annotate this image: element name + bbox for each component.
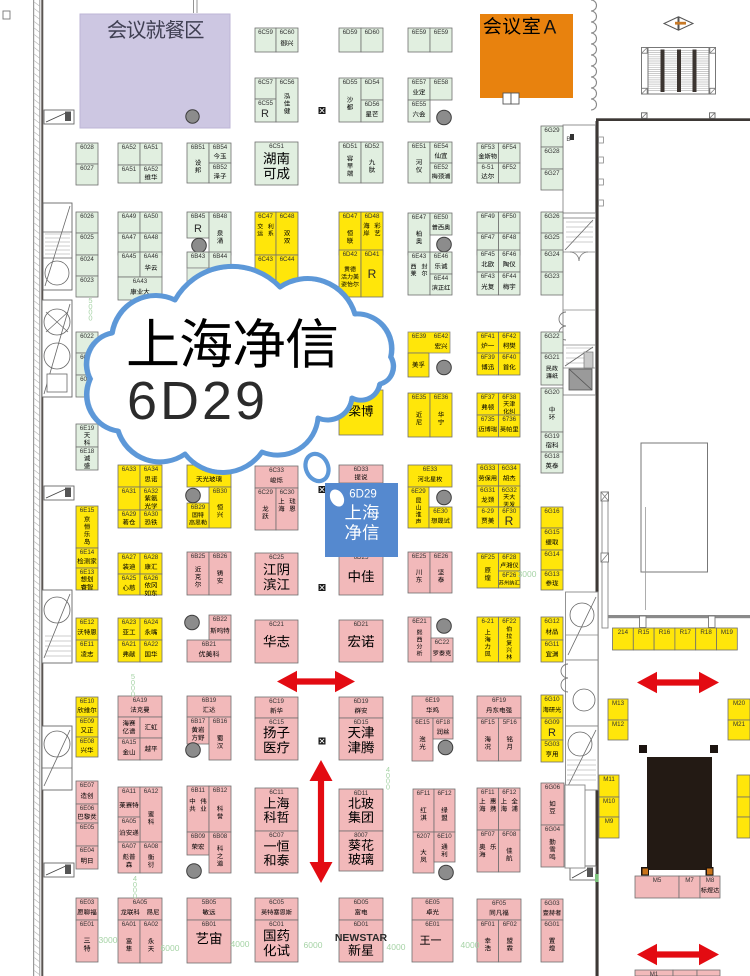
svg-text:6G27: 6G27 [544,170,560,177]
svg-text:6F54: 6F54 [502,144,517,151]
svg-text:6F22: 6F22 [502,618,517,625]
svg-text:5G03: 5G03 [544,741,560,748]
svg-text:0: 0 [131,689,135,698]
svg-text:6D33: 6D33 [354,466,369,473]
svg-text:5F16: 5F16 [503,719,518,726]
svg-text:6E59: 6E59 [412,29,427,36]
svg-text:6D11: 6D11 [354,790,369,797]
svg-text:6B45: 6B45 [191,213,206,220]
svg-text:6G04: 6G04 [545,826,561,833]
svg-text:6C44: 6C44 [280,256,295,263]
svg-text:6B21: 6B21 [202,641,217,648]
svg-text:6C01: 6C01 [269,921,284,928]
svg-text:6G18: 6G18 [544,453,560,460]
svg-text:6F01: 6F01 [481,921,496,928]
svg-text:6C07: 6C07 [269,832,284,839]
svg-text:R: R [261,108,269,120]
svg-text:6E15: 6E15 [80,507,95,514]
svg-text:6-29: 6-29 [482,508,495,515]
svg-text:6E26: 6E26 [434,553,449,560]
svg-text:6A43: 6A43 [133,278,148,285]
svg-text:6E44: 6E44 [434,275,449,282]
svg-text:6G16: 6G16 [544,508,560,515]
svg-text:6025: 6025 [80,234,94,241]
svg-text:3000: 3000 [99,935,118,945]
svg-text:6C22: 6C22 [435,639,450,646]
svg-text:6E10: 6E10 [437,833,452,840]
svg-text:6E19: 6E19 [80,425,95,432]
svg-text:6A47: 6A47 [122,234,137,241]
svg-text:6E19: 6E19 [425,697,440,704]
svg-text:6E42: 6E42 [434,333,449,340]
svg-text:6B54: 6B54 [213,144,228,151]
svg-text:R15: R15 [638,629,650,636]
svg-text:6E01: 6E01 [425,921,440,928]
svg-text:6G22: 6G22 [544,333,560,340]
svg-text:6D01: 6D01 [354,921,369,928]
svg-text:6E06: 6E06 [80,805,95,812]
svg-text:6D59: 6D59 [343,29,358,36]
svg-text:6D48: 6D48 [365,213,380,220]
svg-text:6B43: 6B43 [191,253,206,260]
svg-text:6D41: 6D41 [365,251,380,258]
svg-text:6D42: 6D42 [343,251,358,258]
svg-text:6E29: 6E29 [411,488,426,495]
svg-text:6E21: 6E21 [412,618,427,625]
svg-text:6D47: 6D47 [343,213,358,220]
svg-text:R: R [505,514,514,528]
svg-text:6000: 6000 [161,943,180,953]
svg-text:6E36: 6E36 [434,394,449,401]
svg-text:6A27: 6A27 [122,554,137,561]
svg-text:6A25: 6A25 [122,575,137,582]
svg-text:6B09: 6B09 [191,833,206,840]
svg-text:R: R [194,223,202,235]
svg-text:6-21: 6-21 [482,618,495,625]
svg-text:5B05: 5B05 [202,899,217,906]
svg-text:6G33: 6G33 [480,465,496,472]
svg-text:6C15: 6C15 [269,719,284,726]
svg-text:6D15: 6D15 [354,719,369,726]
svg-text:6028: 6028 [80,144,94,151]
svg-text:6G10: 6G10 [544,696,560,703]
svg-text:A: A [544,18,557,39]
svg-text:6E54: 6E54 [434,143,449,150]
svg-text:4000: 4000 [231,939,250,949]
svg-text:6C59: 6C59 [258,29,273,36]
svg-text:4000: 4000 [387,942,406,952]
svg-text:6G09: 6G09 [544,719,560,726]
svg-text:6E18: 6E18 [80,448,95,455]
svg-text:6735: 6735 [481,416,495,423]
svg-text:M1: M1 [650,971,659,976]
svg-text:6F45: 6F45 [481,251,496,258]
svg-text:R: R [368,267,377,281]
svg-text:6G15: 6G15 [544,529,560,536]
svg-text:6G23: 6G23 [544,273,560,280]
svg-text:6C57: 6C57 [258,79,273,86]
svg-text:6F52: 6F52 [502,164,517,171]
svg-text:6F18: 6F18 [436,719,451,726]
svg-text:6C29: 6C29 [258,489,273,496]
svg-text:M20: M20 [733,700,746,707]
svg-text:6F25: 6F25 [481,554,496,561]
svg-text:6B16: 6B16 [213,718,228,725]
svg-text:6A15: 6A15 [122,739,137,746]
svg-text:6D52: 6D52 [365,143,380,150]
svg-text:6E50: 6E50 [434,214,449,221]
svg-text:6F46: 6F46 [502,251,517,258]
svg-text:6E15: 6E15 [415,719,430,726]
svg-text:6D56: 6D56 [365,101,380,108]
svg-text:6F28: 6F28 [502,554,517,561]
svg-text:6C55: 6C55 [258,100,273,107]
svg-text:214: 214 [618,629,629,636]
svg-text:6E11: 6E11 [80,641,95,648]
svg-text:6C30: 6C30 [280,489,295,496]
svg-text:M8: M8 [706,877,715,884]
svg-text:6D29: 6D29 [349,489,377,501]
svg-text:M7: M7 [685,877,694,884]
svg-text:6G34: 6G34 [502,465,518,472]
svg-text:6C05: 6C05 [269,899,284,906]
svg-text:6B48: 6B48 [213,213,228,220]
svg-text:6E05: 6E05 [425,899,440,906]
svg-text:M19: M19 [721,629,734,636]
svg-text:M10: M10 [603,798,616,805]
svg-text:6F11: 6F11 [417,790,431,797]
svg-text:6C25: 6C25 [269,554,284,561]
svg-text:6C56: 6C56 [280,79,295,86]
svg-text:6A24: 6A24 [144,619,159,626]
svg-text:6A21: 6A21 [122,641,137,648]
svg-text:6E03: 6E03 [80,899,95,906]
svg-text:6B12: 6B12 [213,787,228,794]
svg-text:6F42: 6F42 [502,333,517,340]
svg-text:6027: 6027 [80,165,94,172]
svg-text:6B52: 6B52 [213,164,228,171]
svg-text:6B44: 6B44 [213,253,228,260]
svg-text:6B22: 6B22 [213,616,228,623]
svg-text:6G11: 6G11 [545,641,560,648]
svg-text:6D60: 6D60 [365,29,380,36]
svg-text:6A51: 6A51 [144,144,159,151]
svg-text:6026: 6026 [80,213,94,220]
svg-text:6E35: 6E35 [412,394,427,401]
svg-text:0: 0 [133,891,137,900]
svg-text:6D54: 6D54 [365,79,380,86]
svg-text:6E01: 6E01 [80,921,95,928]
svg-text:6D21: 6D21 [354,621,369,628]
svg-text:M21: M21 [733,721,746,728]
svg-text:6F02: 6F02 [503,921,518,928]
svg-text:6F39: 6F39 [481,354,496,361]
svg-text:6B19: 6B19 [202,697,217,704]
svg-text:6F43: 6F43 [481,273,496,280]
svg-text:6B29: 6B29 [191,504,206,511]
svg-text:6G03: 6G03 [544,900,560,907]
svg-text:6F47: 6F47 [481,234,496,241]
svg-text:6F26: 6F26 [502,572,517,579]
svg-text:6F40: 6F40 [502,354,517,361]
svg-text:M11: M11 [603,776,615,783]
svg-text:6207: 6207 [417,833,431,840]
svg-text:R18: R18 [700,629,712,636]
svg-text:6G21: 6G21 [544,354,560,361]
svg-text:NEWSTAR: NEWSTAR [335,932,388,944]
svg-text:6B11: 6B11 [191,787,206,794]
svg-text:6A08: 6A08 [144,843,159,850]
svg-text:6C21: 6C21 [269,621,284,628]
svg-text:3000: 3000 [518,569,537,579]
svg-text:6G06: 6G06 [545,784,561,791]
svg-text:6A11: 6A11 [122,788,137,795]
svg-text:6G20: 6G20 [544,389,560,396]
svg-text:6A32: 6A32 [144,488,159,495]
svg-text:6G12: 6G12 [544,618,560,625]
svg-text:6F15: 6F15 [481,719,496,726]
svg-text:6A01: 6A01 [122,921,137,928]
svg-text:6E57: 6E57 [412,79,427,86]
svg-text:6A50: 6A50 [144,213,159,220]
svg-text:0: 0 [88,313,92,322]
svg-text:6B17: 6B17 [191,718,206,725]
svg-text:6D51: 6D51 [343,143,358,150]
svg-text:6A07: 6A07 [122,843,137,850]
svg-text:6E08: 6E08 [80,738,95,745]
svg-text:6F37: 6F37 [481,394,496,401]
svg-text:6A23: 6A23 [122,619,137,626]
svg-text:6G19: 6G19 [544,433,560,440]
svg-text:8007: 8007 [354,832,368,839]
svg-text:6A12: 6A12 [144,788,159,795]
svg-text:6B30: 6B30 [213,488,228,495]
svg-text:6E04: 6E04 [80,847,95,854]
svg-text:6F11: 6F11 [481,789,495,796]
svg-text:6F08: 6F08 [502,831,517,838]
svg-text:6G29: 6G29 [544,127,560,134]
svg-text:6E14: 6E14 [80,549,95,556]
svg-text:6A46: 6A46 [144,253,159,260]
svg-text:6C19: 6C19 [269,698,284,705]
svg-text:6A33: 6A33 [122,466,137,473]
svg-text:6A30: 6A30 [144,511,159,518]
svg-text:6F41: 6F41 [481,333,496,340]
svg-text:6D29: 6D29 [127,371,268,431]
svg-text:6A26: 6A26 [144,575,159,582]
svg-text:6023: 6023 [80,277,94,284]
svg-text:6C60: 6C60 [280,29,295,36]
svg-text:6E09: 6E09 [80,718,95,725]
svg-text:R: R [548,727,556,739]
svg-text:6G01: 6G01 [544,921,560,928]
svg-text:6D19: 6D19 [354,698,369,705]
svg-text:R17: R17 [680,629,692,636]
svg-text:6C51: 6C51 [269,143,284,150]
svg-text:6B08: 6B08 [213,833,228,840]
svg-text:M12: M12 [612,721,625,728]
svg-text:4000: 4000 [461,940,480,950]
svg-text:6F38: 6F38 [502,394,517,401]
svg-text:6E25: 6E25 [412,553,427,560]
svg-text:6A52: 6A52 [122,144,137,151]
svg-text:6G32: 6G32 [502,487,518,494]
svg-text:6F12: 6F12 [502,789,517,796]
svg-text:6E13: 6E13 [80,569,95,576]
svg-text:6G25: 6G25 [544,234,560,241]
svg-text:M9: M9 [605,818,614,825]
svg-text:6A45: 6A45 [122,253,137,260]
svg-text:6E47: 6E47 [412,214,427,221]
svg-text:6D55: 6D55 [343,79,358,86]
svg-text:6E39: 6E39 [412,333,427,340]
svg-text:6C47: 6C47 [258,213,273,220]
svg-text:6736: 6736 [502,416,516,423]
svg-text:6C48: 6C48 [280,213,295,220]
svg-text:6022: 6022 [80,333,94,340]
svg-text:6E51: 6E51 [412,143,427,150]
svg-text:M13: M13 [612,700,625,707]
svg-text:6A31: 6A31 [122,488,137,495]
svg-text:M5: M5 [653,877,662,884]
svg-text:6G26: 6G26 [544,213,560,220]
svg-text:6024: 6024 [80,256,94,263]
svg-text:6D05: 6D05 [354,899,369,906]
svg-text:6G24: 6G24 [544,251,560,258]
svg-text:6E52: 6E52 [434,164,449,171]
svg-text:6F05: 6F05 [492,900,507,907]
svg-text:6E59: 6E59 [434,29,449,36]
svg-text:6B26: 6B26 [213,553,228,560]
svg-text:0: 0 [386,782,390,791]
svg-text:6C43: 6C43 [258,256,273,263]
svg-text:6F07: 6F07 [481,831,496,838]
svg-text:6E43: 6E43 [412,253,427,260]
svg-text:6E30: 6E30 [433,508,448,515]
svg-text:6F49: 6F49 [481,213,496,220]
svg-text:6G31: 6G31 [480,487,496,494]
svg-text:6F48: 6F48 [502,234,517,241]
svg-text:6E46: 6E46 [434,253,449,260]
svg-text:6A49: 6A49 [122,213,137,220]
svg-text:6A29: 6A29 [122,511,137,518]
svg-text:6A05: 6A05 [122,818,137,825]
svg-text:6000: 6000 [304,940,323,950]
svg-text:6-51: 6-51 [482,164,495,171]
svg-text:6G14: 6G14 [544,551,560,558]
svg-text:6F12: 6F12 [437,790,452,797]
svg-text:6E55: 6E55 [412,101,427,108]
svg-text:6A02: 6A02 [144,921,159,928]
svg-text:R16: R16 [659,629,671,636]
svg-text:6E07: 6E07 [80,782,95,789]
svg-text:6B51: 6B51 [191,144,206,151]
svg-text:6F50: 6F50 [502,213,517,220]
svg-text:6B25: 6B25 [191,553,206,560]
svg-text:6A48: 6A48 [144,234,159,241]
svg-text:6A28: 6A28 [144,554,159,561]
svg-text:6A34: 6A34 [144,466,159,473]
svg-text:6E58: 6E58 [434,79,449,86]
svg-text:6F19: 6F19 [492,697,507,704]
svg-text:6F44: 6F44 [502,273,517,280]
svg-text:6A22: 6A22 [144,641,159,648]
svg-text:6E33: 6E33 [423,466,438,473]
svg-text:6E12: 6E12 [80,619,95,626]
svg-text:6A51: 6A51 [122,166,137,173]
svg-text:6F53: 6F53 [481,144,496,151]
svg-text:6G13: 6G13 [544,571,560,578]
svg-text:6C33: 6C33 [269,467,284,474]
svg-text:6B01: 6B01 [202,921,217,928]
svg-text:6C11: 6C11 [269,789,284,796]
svg-text:6E10: 6E10 [80,698,95,705]
svg-text:6E05: 6E05 [80,824,95,831]
svg-text:6G28: 6G28 [544,148,560,155]
svg-text:6A52: 6A52 [144,166,159,173]
